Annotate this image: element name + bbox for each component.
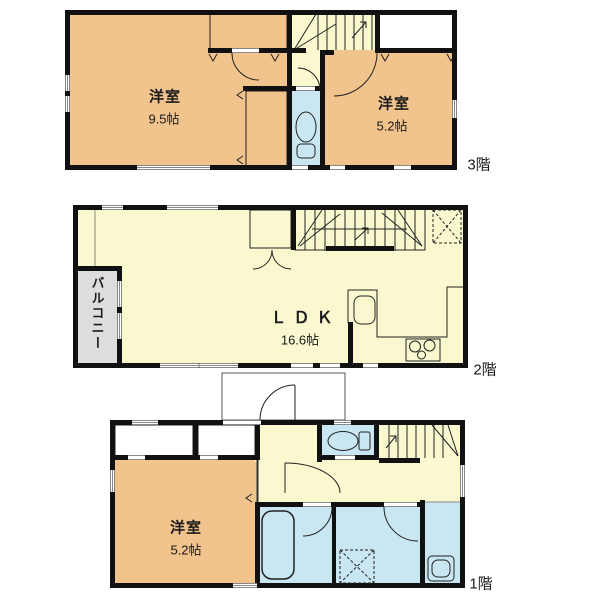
floor-label-2f: 2階 (473, 359, 496, 380)
floor-label-3f: 3階 (467, 154, 490, 175)
closet-1f-a (115, 425, 193, 457)
washroom-fill (336, 505, 420, 585)
room-1f-name: 洋室 (170, 517, 202, 538)
entrance-porch (222, 373, 345, 420)
room-3f-west-size: 9.5帖 (148, 109, 179, 128)
balcony-name: バルコニー (88, 276, 107, 351)
closet-1f-b (198, 425, 255, 457)
ldk-fill (73, 205, 468, 368)
powder-room-fill (425, 502, 460, 586)
closet-3f-b (378, 13, 454, 51)
ldk-name: ＬＤＫ (270, 304, 339, 328)
floor-2 (73, 205, 468, 368)
ldk-size: 16.6帖 (281, 330, 319, 349)
floor-label-1f: 1階 (469, 573, 492, 594)
floor-1 (110, 373, 465, 588)
floor-3 (65, 10, 457, 170)
bathroom-fill (260, 505, 332, 585)
hall-1f-fill (258, 460, 465, 502)
room-3f-east-size: 5.2帖 (376, 116, 407, 135)
room-1f-size: 5.2帖 (170, 540, 201, 559)
room-3f-east-name: 洋室 (378, 93, 410, 114)
room-3f-west-name: 洋室 (149, 86, 181, 107)
floor-plan-canvas: 洋室 9.5帖 洋室 5.2帖 3階 ＬＤＫ 16.6帖 バルコニー 2階 洋室… (0, 0, 600, 599)
entrance-hall-fill (255, 425, 317, 462)
toilet-1f-fill (322, 425, 374, 457)
